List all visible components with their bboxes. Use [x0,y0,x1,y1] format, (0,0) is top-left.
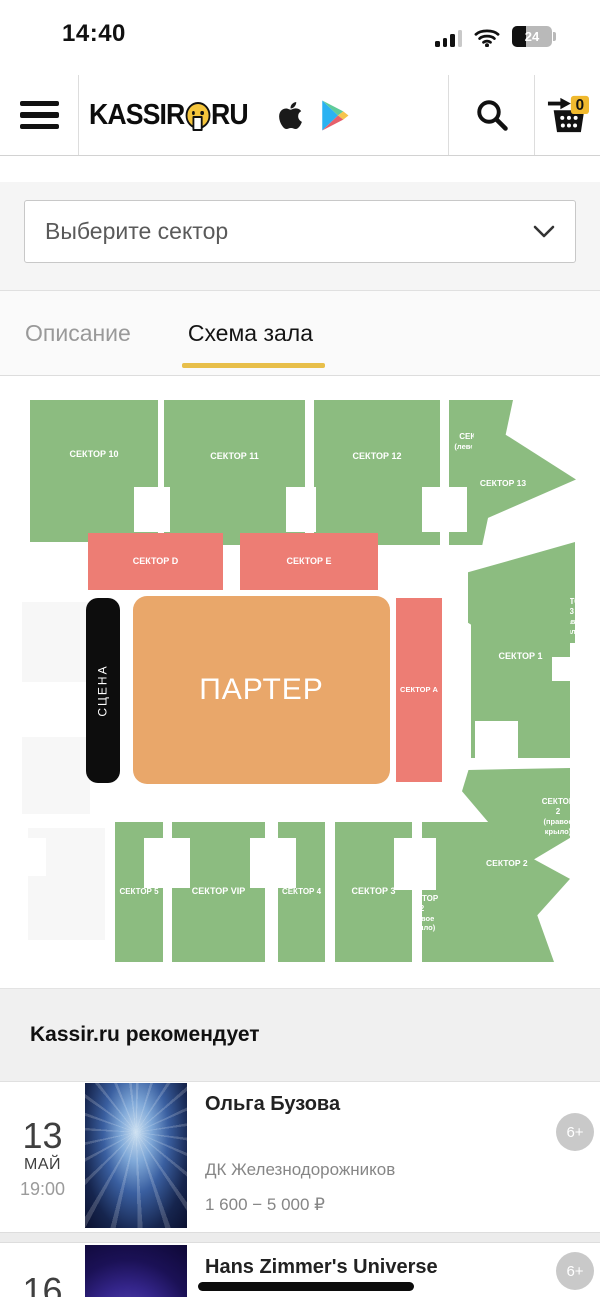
spacer [0,157,600,182]
smiley-ticket-icon [185,102,210,129]
clock: 14:40 [62,20,126,48]
event-time: 19:00 [0,1179,85,1200]
cart-button[interactable]: 0 [534,75,600,155]
map-cutout [394,838,436,890]
wifi-icon [474,28,500,47]
sector-parter[interactable]: ПАРТЕР [133,596,390,784]
venue-map: СЕКТОР 10 СЕКТОР 11 СЕКТОР 12 СЕКТОР 13(… [0,376,600,988]
event-poster[interactable] [85,1245,187,1297]
stage: СЦЕНА [86,598,120,783]
page: 14:40 24 KASSIR RU [0,0,600,1297]
chevron-down-icon [533,225,555,239]
apple-icon [277,100,304,131]
hamburger-icon [20,101,59,130]
map-cutout [134,487,170,532]
map-cutout [286,487,316,532]
map-cutout [28,838,46,876]
recommendations-title: Kassir.ru рекомендует [30,1023,260,1047]
search-icon [474,97,510,133]
status-icons: 24 [435,26,552,47]
recommendations-header: Kassir.ru рекомендует [0,988,600,1082]
disabled-sector [22,602,90,682]
age-rating-badge: 6+ [556,1252,594,1290]
event-month: МАЙ [0,1156,85,1174]
event-info: Hans Zimmer's Universe [205,1243,540,1297]
app-header: KASSIR RU [0,75,600,156]
tab-hall-scheme[interactable]: Схема зала [188,291,313,375]
sector-e[interactable]: СЕКТОР E [240,533,378,590]
search-button[interactable] [448,75,534,155]
tab-bar: Описание Схема зала [0,291,600,376]
cart-count-badge: 0 [575,97,584,114]
logo-text-left: KASSIR [89,99,184,132]
battery-percent: 24 [525,29,539,44]
status-bar: 14:40 24 [0,0,600,75]
sector-a[interactable]: СЕКТОР А [396,598,442,782]
hamburger-menu-button[interactable] [0,75,78,155]
map-cutout [250,838,296,888]
row-divider [0,1232,600,1243]
sector-select-value: Выберите сектор [45,218,533,245]
event-info: Ольга Бузова ДК Железнодорожников 1 600 … [205,1082,540,1232]
sector-13[interactable]: СЕКТОР 13 [458,414,576,531]
event-day: 16 [0,1273,85,1297]
age-rating-badge: 6+ [556,1113,594,1151]
map-cutout [552,657,570,681]
sector-filter-panel: Выберите сектор [0,182,600,291]
event-row-olga-buzova[interactable]: 13 МАЙ 19:00 Ольга Бузова ДК Железнодоро… [0,1082,600,1232]
cart-icon: 0 [545,94,591,136]
event-date: 16 [0,1243,85,1297]
header-logo-area: KASSIR RU [78,75,448,155]
event-poster[interactable] [85,1083,187,1228]
map-cutout [422,487,467,532]
google-play-icon [320,99,350,132]
event-date: 13 МАЙ 19:00 [0,1082,85,1200]
event-title[interactable]: Hans Zimmer's Universe [205,1256,438,1279]
app-store-link[interactable] [277,100,304,131]
event-price: 1 600 − 5 000 ₽ [205,1195,325,1215]
sector-11[interactable]: СЕКТОР 11 [164,400,305,545]
title-underline [198,1282,414,1291]
event-venue: ДК Железнодорожников [205,1160,395,1180]
map-cutout [475,721,518,758]
signal-icon [435,30,462,47]
sector-d[interactable]: СЕКТОР D [88,533,223,590]
event-title[interactable]: Ольга Бузова [205,1093,340,1116]
map-cutout [144,838,190,888]
tab-description[interactable]: Описание [25,291,131,375]
battery-icon: 24 [512,26,552,47]
google-play-link[interactable] [320,99,350,132]
sector-select[interactable]: Выберите сектор [24,200,576,263]
event-day: 13 [0,1118,85,1154]
event-row-hans-zimmer[interactable]: 16 Hans Zimmer's Universe 6+ [0,1243,600,1297]
kassir-logo[interactable]: KASSIR RU [89,99,248,132]
disabled-sector [22,737,90,814]
logo-text-right: RU [211,99,248,132]
